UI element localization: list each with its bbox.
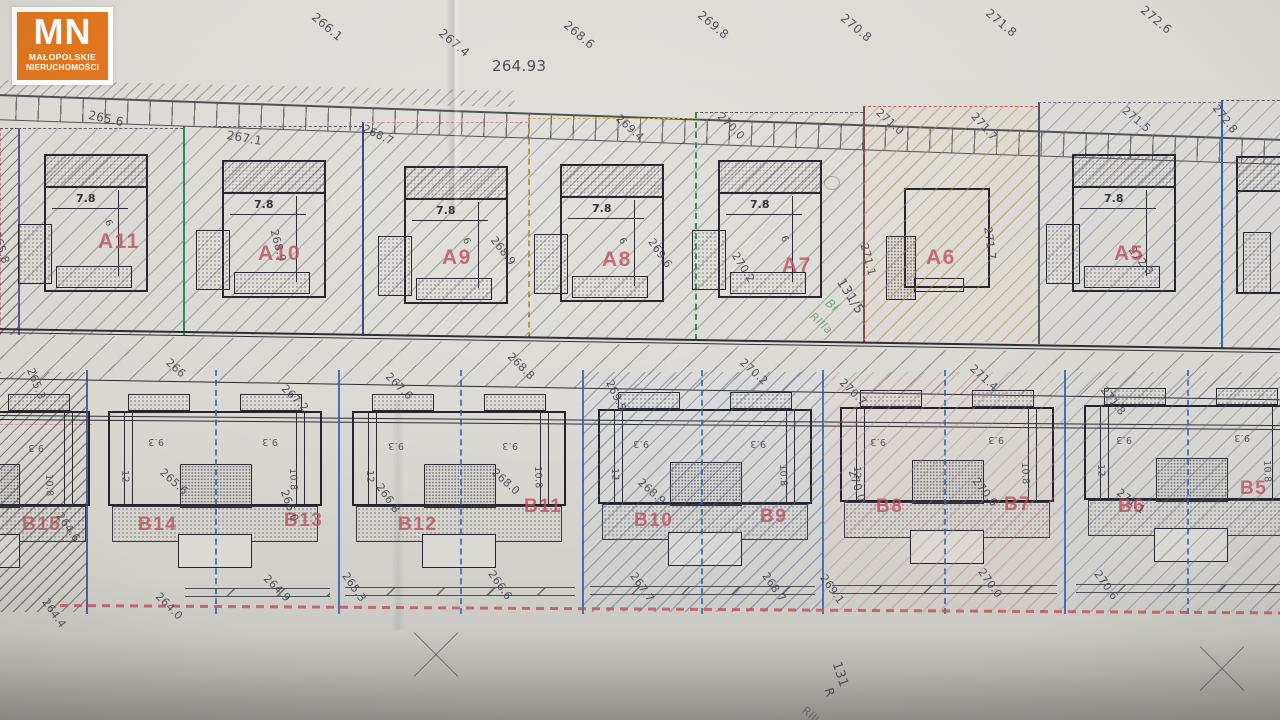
elevation-label: 271.8 <box>983 6 1019 40</box>
depth-dimension-label: 12 <box>851 466 862 479</box>
x-mark <box>414 632 458 676</box>
building-step <box>234 272 310 294</box>
building-a5: 7.8 <box>1058 150 1190 300</box>
width-dimension-label: 9.3 <box>262 436 278 447</box>
plot-label-b11: B11 <box>524 496 562 518</box>
wall-line <box>368 411 369 506</box>
depth-dimension-label: 10.8 <box>1019 462 1031 485</box>
plot-label-a8: A8 <box>602 248 632 272</box>
building-porch <box>378 236 412 296</box>
width-dimension-label: 9.3 <box>870 436 886 447</box>
building-porch <box>196 230 230 290</box>
building-step <box>56 266 132 288</box>
center-block <box>670 462 742 506</box>
x-mark <box>1200 644 1248 692</box>
plot-label-b7: B7 <box>1004 494 1031 516</box>
depth-dimension-line <box>478 202 479 288</box>
width-dimension-line <box>412 220 488 221</box>
plot-label-a5: A5 <box>1114 242 1144 266</box>
building-roof-hatch <box>560 164 664 198</box>
plot-label-a9: A9 <box>442 246 472 270</box>
width-dimension-label: 9.3 <box>388 440 404 451</box>
depth-dimension-label: 12 <box>1095 464 1106 477</box>
plot-label-b9: B9 <box>760 506 787 528</box>
roof-box <box>484 394 546 411</box>
width-dimension-label: 9.3 <box>750 438 766 449</box>
building-roof-hatch <box>44 154 148 188</box>
center-block <box>0 464 20 508</box>
building-step <box>416 278 492 300</box>
width-dimension-label: 7.8 <box>76 192 96 205</box>
building-roof-hatch <box>404 166 508 200</box>
building-roof-hatch <box>1072 154 1176 188</box>
boundary-line-blue-dashed <box>460 370 462 614</box>
plot-label-a11: A11 <box>98 230 140 254</box>
site-plan-photo: 7.8 7.8 7.8 7.8 7.8 <box>0 0 1280 720</box>
building-porch <box>534 234 568 294</box>
depth-dimension-label: 10.8 <box>777 464 789 487</box>
width-dimension-label: 9.3 <box>28 442 44 453</box>
logo-line2: NIERUCHOMOŚCI <box>17 63 108 73</box>
elevation-label: 272.6 <box>1138 3 1174 37</box>
width-dimension-line <box>52 208 128 209</box>
width-dimension-label: 7.8 <box>436 204 456 217</box>
wall-line <box>786 409 787 504</box>
plot-label-b12: B12 <box>398 514 437 536</box>
boundary-line-blue <box>582 370 584 614</box>
fence-elevation-label: 264.93 <box>492 57 546 75</box>
elevation-label: 269.8 <box>695 8 731 42</box>
wall-line <box>540 411 541 506</box>
building-a4-partial <box>1226 152 1280 302</box>
width-dimension-label: 9.3 <box>988 434 1004 445</box>
building-a6 <box>878 168 998 298</box>
plot-label-a7: A7 <box>782 254 812 278</box>
plot-label-a6: A6 <box>926 246 956 270</box>
boundary-line-blue-dashed <box>215 370 217 614</box>
depth-dimension-line <box>296 196 297 282</box>
building-a11: 7.8 <box>30 150 162 300</box>
center-block <box>1156 458 1228 502</box>
wall-line <box>1036 407 1037 502</box>
boundary-line-blue-dashed <box>1187 370 1189 614</box>
width-dimension-line <box>568 218 644 219</box>
roof-box <box>128 394 190 411</box>
wall-line <box>124 411 125 506</box>
elevation-label: 268.6 <box>561 18 597 52</box>
roof-box <box>972 390 1034 407</box>
width-dimension-label: 9.3 <box>1234 432 1250 443</box>
elevation-label: 266.1 <box>309 10 345 44</box>
width-dimension-label: 9.3 <box>148 436 164 447</box>
garage-door <box>422 534 496 568</box>
depth-dimension-label: 12 <box>119 470 130 483</box>
building-porch <box>692 230 726 290</box>
width-dimension-label: 7.8 <box>254 198 274 211</box>
plot-label-b14: B14 <box>138 514 177 536</box>
wall-line <box>296 411 297 506</box>
building-porch <box>18 224 52 284</box>
building-roof-hatch <box>222 160 326 194</box>
elevation-label: 270.8 <box>838 11 874 45</box>
wall-line <box>548 411 549 506</box>
red-boundary-wavy-line <box>60 604 1280 614</box>
depth-dimension-label: 10.8 <box>43 474 55 497</box>
logo-line1: MAŁOPOLSKIE <box>17 52 108 63</box>
plot-label-a10: A10 <box>258 242 301 266</box>
width-dimension-line <box>726 214 802 215</box>
building-porch <box>886 236 916 300</box>
plot-label-b10: B10 <box>634 510 673 532</box>
width-dimension-line <box>230 214 306 215</box>
building-step <box>572 276 648 298</box>
building-a7: 7.8 <box>704 156 836 306</box>
width-dimension-label: 9.3 <box>502 440 518 451</box>
wall-line <box>64 411 65 506</box>
logo-initials: MN <box>17 12 108 52</box>
depth-dimension-label: 10.8 <box>532 466 544 489</box>
depth-dimension-label: 10.8 <box>287 468 299 491</box>
wall-line <box>1100 405 1101 500</box>
sidewalk-bar <box>832 585 1057 594</box>
building-outline <box>904 188 990 288</box>
wall-line <box>794 409 795 504</box>
building-porch <box>1243 232 1271 294</box>
width-dimension-line <box>1080 208 1156 209</box>
boundary-line-blue-dashed <box>944 370 946 614</box>
wall-line <box>1028 407 1029 502</box>
wall-line <box>72 411 73 506</box>
roof-box <box>730 392 792 409</box>
wall-line <box>622 409 623 504</box>
plot-label-b8: B8 <box>876 496 903 518</box>
land-class-label: R <box>822 686 838 699</box>
width-dimension-label: 9.3 <box>1116 434 1132 445</box>
building-a8: 7.8 <box>546 160 678 310</box>
wall-line <box>1108 405 1109 500</box>
sidewalk-bar <box>185 588 330 597</box>
depth-dimension-label: 10.8 <box>1261 460 1273 483</box>
wall-line <box>132 411 133 506</box>
land-class-label: RIIIa <box>799 704 827 720</box>
boundary-line-blue <box>1064 370 1066 614</box>
building-a9: 7.8 <box>390 162 522 312</box>
depth-dimension-line <box>634 200 635 286</box>
boundary-line-blue <box>86 370 88 614</box>
building-step <box>914 278 964 292</box>
depth-dimension-label: 12 <box>364 470 375 483</box>
building-porch <box>1046 224 1080 284</box>
elevation-label: 264.4 <box>39 596 69 630</box>
wall-line <box>304 411 305 506</box>
logo-background: MN MAŁOPOLSKIE NIERUCHOMOŚCI <box>17 12 108 80</box>
width-dimension-label: 7.8 <box>1104 192 1124 205</box>
garage-door <box>668 532 742 566</box>
sidewalk-bar <box>345 587 575 596</box>
width-dimension-label: 7.8 <box>750 198 770 211</box>
parcel-number-label: 131 <box>829 660 851 689</box>
boundary-line-blue-dashed <box>701 370 703 614</box>
depth-dimension-label: 12 <box>609 468 620 481</box>
building-roof-hatch <box>718 160 822 194</box>
garage-door <box>910 530 984 564</box>
width-dimension-label: 7.8 <box>592 202 612 215</box>
scribble-circle <box>824 176 840 190</box>
width-dimension-label: 9.3 <box>633 438 649 449</box>
roof-box <box>1216 388 1278 405</box>
wall-line <box>1272 405 1273 500</box>
garage-door <box>0 534 20 568</box>
logo: MN MAŁOPOLSKIE NIERUCHOMOŚCI <box>12 7 113 85</box>
wall-line <box>614 409 615 504</box>
elevation-label: 267.4 <box>436 26 472 60</box>
garage-door <box>1154 528 1228 562</box>
